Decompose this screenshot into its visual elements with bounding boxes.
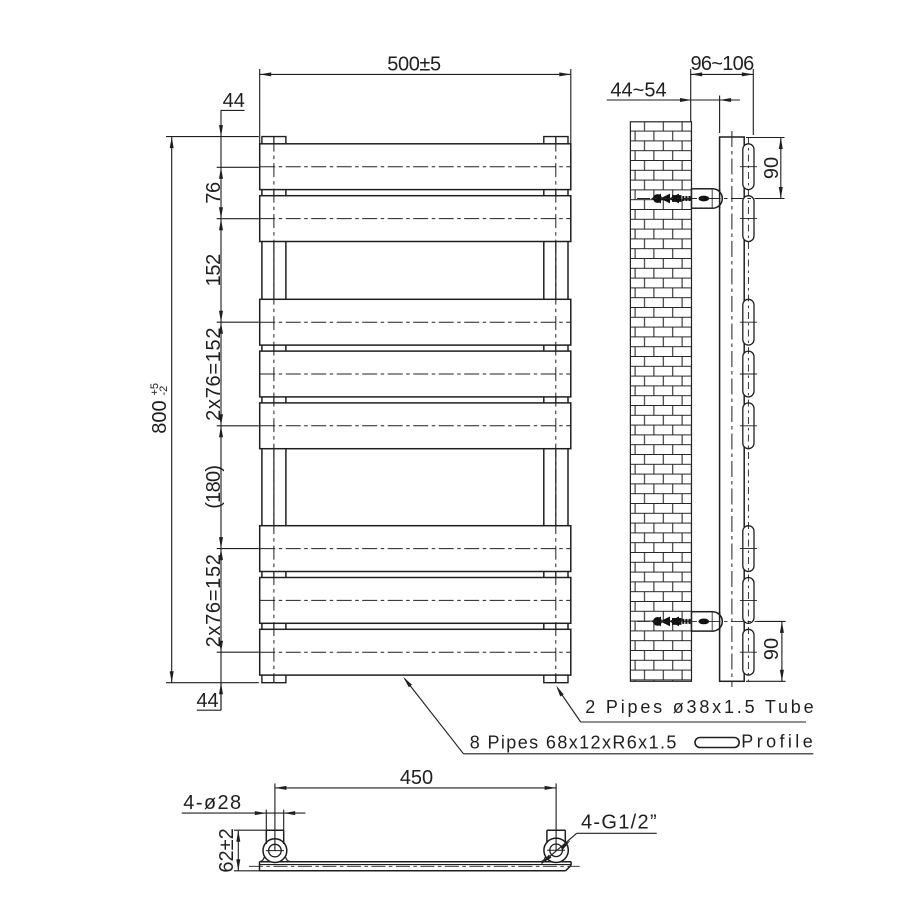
svg-text:4-G1/2”: 4-G1/2” [581,812,658,834]
svg-text:62±2: 62±2 [216,828,238,872]
svg-text:44: 44 [196,690,218,712]
svg-text:8 Pipes 68x12xR6x1.5: 8 Pipes 68x12xR6x1.5 [470,733,678,753]
svg-text:90: 90 [761,157,783,179]
svg-text:800: 800 [149,400,171,433]
svg-text:(180): (180) [203,466,225,509]
svg-text:2x76=152: 2x76=152 [203,553,225,647]
svg-text:500±5: 500±5 [387,54,441,76]
svg-text:2 Pipes ø38x1.5 Tube: 2 Pipes ø38x1.5 Tube [585,697,816,717]
svg-text:Profile: Profile [741,732,816,752]
svg-text:96~106: 96~106 [690,53,754,75]
svg-text:4-ø28: 4-ø28 [183,792,242,814]
svg-text:2x76=152: 2x76=152 [203,327,225,421]
svg-text:450: 450 [400,767,433,789]
svg-text:-2: -2 [158,386,170,396]
svg-text:90: 90 [761,638,783,660]
svg-text:44: 44 [223,90,245,112]
svg-text:152: 152 [203,254,225,286]
svg-text:76: 76 [203,182,225,204]
svg-text:44~54: 44~54 [610,80,666,102]
